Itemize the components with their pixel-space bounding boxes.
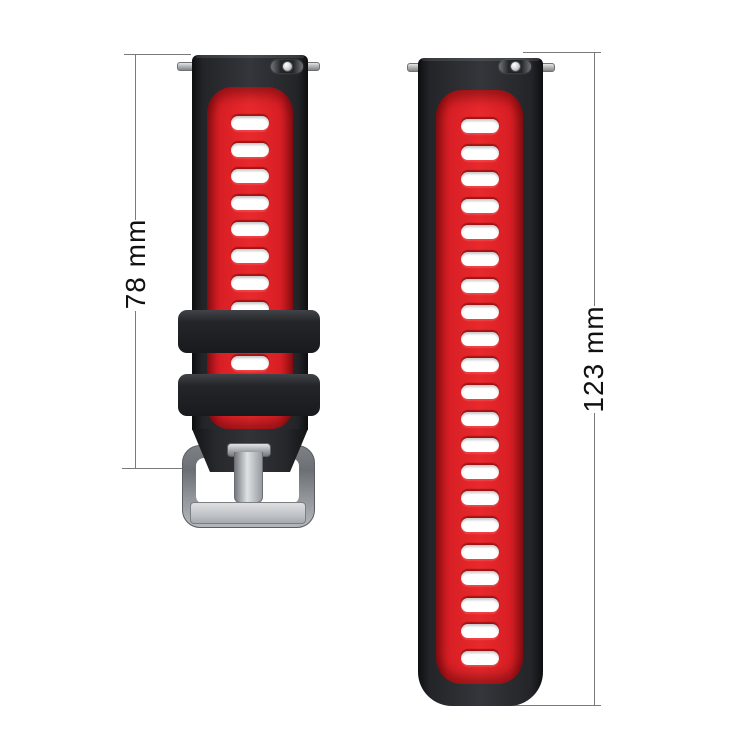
vent-slot <box>231 196 269 210</box>
left-dim-line-lower <box>135 311 136 468</box>
vent-slot <box>461 305 499 319</box>
vent-slot <box>461 385 499 399</box>
vent-slot <box>461 465 499 479</box>
vent-slot <box>231 356 269 370</box>
vent-slot <box>461 119 499 133</box>
buckle-tongue <box>234 452 263 503</box>
vent-slot <box>461 491 499 505</box>
quick-release-screw-right <box>499 60 531 73</box>
right-dim-tick-top <box>523 52 601 53</box>
left-dim-line-upper <box>135 54 136 220</box>
vent-slot <box>461 651 499 665</box>
vent-slot <box>461 438 499 452</box>
screw-knob-icon <box>510 61 521 72</box>
vent-slot <box>461 199 499 213</box>
vent-slot <box>461 598 499 612</box>
vent-slot <box>231 249 269 263</box>
vent-slot <box>461 412 499 426</box>
vent-slot <box>461 571 499 585</box>
vent-slot <box>461 332 499 346</box>
vent-slot <box>461 279 499 293</box>
vent-slot <box>231 169 269 183</box>
right-dim-label: 123 mm <box>578 305 610 412</box>
vent-slot <box>461 252 499 266</box>
screw-knob-icon <box>282 61 293 72</box>
vent-slot <box>461 146 499 160</box>
quick-release-screw-left <box>271 60 303 73</box>
vent-slot <box>461 358 499 372</box>
vent-slot <box>461 624 499 638</box>
vent-slot <box>461 172 499 186</box>
right-dim-line-upper <box>594 52 595 306</box>
right-red-insert <box>436 90 523 684</box>
vent-slot <box>231 276 269 290</box>
vent-slot <box>231 143 269 157</box>
left-dim-tick-bottom <box>122 468 188 469</box>
vent-slot <box>461 518 499 532</box>
left-dim-label: 78 mm <box>120 219 152 310</box>
vent-slot <box>231 116 269 130</box>
vent-slot <box>231 222 269 236</box>
buckle-bottom-bar <box>190 502 306 524</box>
vent-slot <box>461 225 499 239</box>
right-dim-line-lower <box>594 413 595 705</box>
strap-keeper-lower <box>178 374 320 416</box>
left-slot-between-keepers <box>231 356 269 370</box>
vent-slot <box>461 545 499 559</box>
strap-keeper-upper <box>178 310 320 353</box>
